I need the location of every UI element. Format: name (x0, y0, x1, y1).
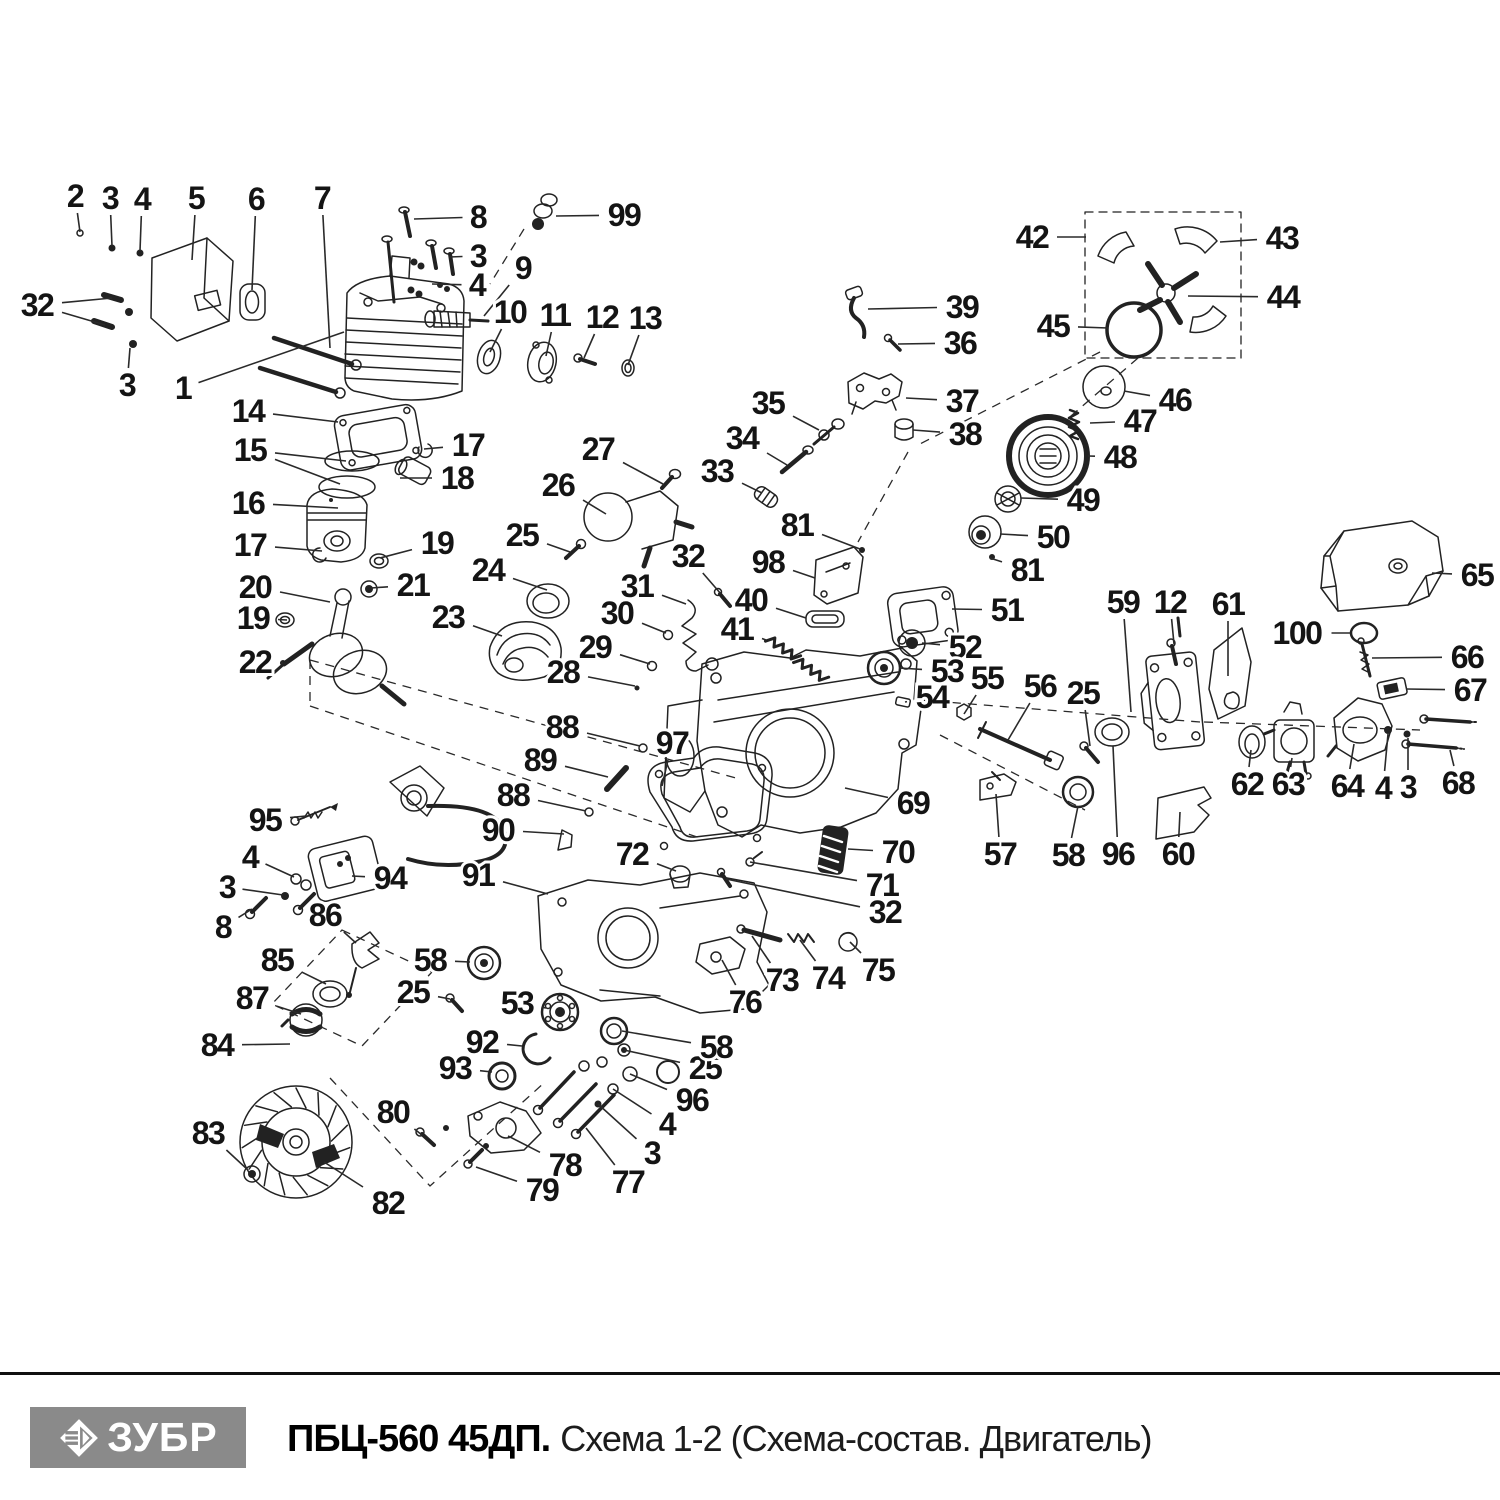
leader-line (620, 655, 650, 664)
part-number-label: 96 (676, 1082, 709, 1118)
part-number-label: 15 (234, 432, 267, 468)
part-number-label: 88 (546, 709, 579, 745)
leader-line (266, 864, 295, 877)
leader-line (226, 1150, 248, 1170)
part-number-label: 77 (612, 1164, 645, 1200)
bolt-head (554, 1119, 563, 1128)
leader-line (850, 942, 861, 953)
part-number-label: 9 (515, 250, 532, 286)
intake-flange (524, 340, 560, 385)
spark-plug-cap (390, 766, 444, 816)
nut-3b (1404, 731, 1411, 738)
leader-line (371, 587, 388, 588)
worm-gear (752, 484, 780, 509)
leader-line (449, 257, 463, 258)
oil-pump-body (848, 373, 902, 414)
leader-line (542, 1007, 546, 1008)
part-number-label: 11 (540, 297, 572, 333)
part-number-label: 16 (232, 485, 265, 521)
leader-line (547, 544, 570, 552)
screw-8b (246, 898, 267, 919)
leader-line (62, 312, 105, 325)
shaft-34 (782, 446, 813, 472)
part-number-label: 54 (916, 679, 950, 715)
part-number-label: 13 (629, 300, 662, 336)
guide-strip (806, 611, 844, 627)
leader-line (1072, 806, 1079, 838)
part-number-label: 69 (897, 785, 930, 821)
cap-75 (839, 933, 857, 951)
leader-line (1000, 534, 1028, 536)
part-number-label: 50 (1037, 519, 1070, 555)
part-number-label: 1 (175, 370, 192, 406)
leader-line (455, 961, 470, 962)
leader-line (556, 215, 599, 216)
part-number-label: 26 (542, 467, 575, 503)
part-number-label: 58 (700, 1029, 733, 1065)
oil-seal-24 (527, 584, 569, 618)
chain-guide (814, 547, 863, 604)
leader-line (1432, 573, 1452, 574)
brand-logo: ЗУБР (30, 1407, 246, 1468)
part-number-label: 84 (201, 1027, 235, 1063)
part-number-label: 79 (526, 1172, 559, 1208)
part-number-label: 23 (432, 599, 465, 635)
part-number-label: 19 (421, 525, 454, 561)
bolt-head (572, 1130, 581, 1139)
part-number-label: 97 (656, 725, 689, 761)
part-number-label: 43 (1266, 220, 1299, 256)
part-number-label: 25 (397, 974, 430, 1010)
leader-line (273, 414, 338, 422)
leader-line (1113, 746, 1117, 837)
cylinder-screws (382, 207, 454, 302)
part-number-label: 47 (1124, 403, 1157, 439)
part-number-label: 70 (882, 834, 915, 870)
part-number-label: 4 (242, 839, 260, 875)
washer-4b (1384, 726, 1392, 734)
part-number-label: 27 (582, 431, 615, 467)
part-number-label: 42 (1016, 219, 1049, 255)
part-number-label: 44 (1267, 279, 1301, 315)
part-number-label: 12 (586, 299, 619, 335)
model-name: ПБЦ-560 45ДП. (287, 1418, 550, 1460)
screw-80 (416, 1128, 434, 1145)
screw-95 (291, 803, 338, 825)
leader-line (565, 766, 608, 777)
spark-plug (425, 311, 488, 327)
spark-arrestor (532, 194, 557, 230)
part-number-label: 22 (239, 644, 272, 680)
part-number-label: 18 (441, 460, 474, 496)
leader-line (507, 1045, 522, 1047)
leader-line (952, 609, 982, 610)
leader-line (503, 882, 548, 894)
leader-line (776, 608, 806, 618)
leader-line (1179, 812, 1180, 837)
part-number-label: 31 (621, 568, 654, 604)
crankcase-gasket-97 (648, 747, 772, 850)
part-number-label: 67 (1454, 672, 1487, 708)
part-number-label: 14 (232, 393, 266, 429)
leader-line (800, 940, 816, 961)
part-number-label: 58 (1052, 837, 1085, 873)
part-number-label: 4 (134, 181, 152, 217)
gasket-61 (1209, 628, 1251, 719)
leader-line (793, 416, 819, 430)
leader-line (996, 794, 999, 837)
leader-line (584, 334, 595, 358)
part-number-label: 34 (726, 420, 760, 456)
part-number-label: 76 (729, 984, 762, 1020)
part-number-label: 12 (1154, 584, 1187, 620)
leader-line (1085, 710, 1090, 746)
leader-line (323, 215, 330, 348)
leader-line (622, 1031, 691, 1043)
nut (125, 308, 133, 316)
leader-line (703, 573, 721, 594)
leader-line (414, 218, 463, 220)
part-number-label: 65 (1461, 557, 1494, 593)
cylinder-gasket (333, 403, 423, 471)
pin-clip (418, 444, 432, 457)
leader-line (1021, 498, 1058, 499)
leader-line (438, 997, 450, 999)
schematic-page: 2345678993491011121332311415171816171920… (0, 0, 1500, 1500)
part-number-label: 36 (944, 325, 977, 361)
leader-line (140, 216, 141, 251)
part-number-label: 61 (1212, 586, 1245, 622)
leader-line (624, 1050, 680, 1062)
part-number-label: 51 (991, 592, 1024, 628)
leader-line (523, 832, 564, 835)
washer (597, 1057, 607, 1067)
part-number-label: 45 (1037, 308, 1070, 344)
leader-line (1450, 750, 1454, 766)
part-number-label: 17 (234, 527, 267, 563)
clutch-spider (1140, 264, 1196, 322)
part-number-label: 75 (862, 952, 895, 988)
screw-25 (566, 540, 586, 559)
oil-hose (845, 286, 865, 337)
screw-36 (885, 335, 901, 351)
part-number-label: 68 (1442, 765, 1475, 801)
part-number-label: 25 (1067, 675, 1100, 711)
leader-line (242, 1044, 290, 1045)
circlip-92 (523, 1034, 550, 1064)
part-number-label: 89 (524, 742, 557, 778)
washer (579, 1061, 589, 1071)
leader-line (722, 960, 736, 985)
part-number-label: 64 (1331, 768, 1365, 804)
leader-line (1078, 327, 1108, 328)
part-number-label: 72 (616, 836, 649, 872)
leader-line (275, 459, 340, 484)
leader-line (278, 620, 287, 621)
leader-line (424, 447, 443, 449)
part-number-label: 37 (946, 383, 979, 419)
bracket-76 (696, 937, 745, 974)
part-number-label: 63 (1272, 766, 1305, 802)
leader-line (588, 677, 635, 686)
leader-line (1406, 689, 1445, 690)
leader-line (243, 889, 284, 895)
leader-line (1220, 240, 1257, 242)
part-number-label: 4 (469, 267, 487, 303)
exploded-parts-diagram: 2345678993491011121332311415171816171920… (0, 0, 1500, 1387)
leader-line (432, 284, 462, 285)
part-number-label: 80 (377, 1094, 410, 1130)
leader-line (1385, 734, 1388, 771)
part-number-label: 100 (1273, 615, 1323, 651)
seal-96a (1095, 718, 1129, 746)
part-number-label: 59 (1107, 584, 1140, 620)
part-number-label: 32 (869, 894, 902, 930)
leader-line (848, 849, 873, 851)
part-number-label: 3 (219, 869, 236, 905)
leader-line (793, 571, 815, 579)
leader-line (538, 801, 586, 812)
part-number-label: 19 (237, 600, 270, 636)
part-number-label: 25 (506, 517, 539, 553)
nut (281, 892, 289, 900)
leader-line (77, 213, 80, 232)
part-number-label: 83 (192, 1115, 225, 1151)
part-number-label: 81 (1011, 552, 1044, 588)
throttle-rod-73 (737, 925, 780, 940)
part-number-label: 39 (946, 289, 979, 325)
brand-name: ЗУБР (107, 1417, 217, 1458)
part-number-label: 8 (215, 909, 232, 945)
needle-cage-49 (995, 486, 1021, 512)
leader-line (62, 298, 112, 303)
washer (301, 880, 311, 890)
screw-25c (1080, 742, 1098, 762)
part-number-label: 60 (1162, 836, 1195, 872)
leader-line (476, 1167, 517, 1181)
starter-pawl-78 (468, 1102, 541, 1153)
part-number-label: 53 (501, 985, 534, 1021)
intake-gasket (474, 338, 505, 377)
bearing-58b (1063, 777, 1093, 807)
leader-line (1188, 296, 1258, 297)
leader-line (324, 1162, 363, 1187)
screw-27 (662, 470, 681, 489)
part-number-label: 17 (452, 427, 485, 463)
page-title: ПБЦ-560 45ДП.Схема 1-2 (Схема-состав. Дв… (287, 1418, 1152, 1461)
part-number-label: 93 (439, 1050, 472, 1086)
ring-62 (1239, 726, 1265, 758)
collar-50 (969, 516, 1001, 548)
linkage-57 (980, 772, 1016, 800)
nut (129, 340, 137, 348)
air-box-cover-65 (1321, 521, 1443, 611)
nut (345, 855, 351, 861)
part-number-label: 56 (1024, 668, 1057, 704)
part-number-label: 7 (314, 180, 331, 216)
pin-81 (859, 547, 865, 553)
part-number-label: 74 (812, 960, 846, 996)
part-number-label: 94 (374, 860, 408, 896)
screw-25a (446, 994, 462, 1011)
housing-59 (1137, 652, 1205, 752)
leader-line (128, 348, 130, 368)
cylinder (345, 256, 464, 400)
leader-line (1124, 391, 1150, 396)
part-number-label: 88 (497, 777, 530, 813)
part-number-label: 87 (236, 980, 269, 1016)
leader-line (273, 504, 338, 508)
part-number-label: 81 (781, 507, 814, 543)
piston-ring (325, 451, 379, 471)
leader-line (473, 626, 502, 636)
leader-line (845, 788, 888, 798)
nut (337, 861, 343, 867)
part-number-label: 57 (984, 836, 1017, 872)
part-number-label: 99 (608, 197, 641, 233)
seal-93 (489, 1063, 515, 1089)
crankshaft (268, 589, 404, 704)
leader-line (613, 1089, 652, 1114)
bolt-35 (814, 419, 844, 444)
pin-89 (607, 768, 626, 789)
part-number-label: 62 (1231, 766, 1264, 802)
part-number-label: 32 (672, 538, 705, 574)
grommet-38 (895, 419, 913, 440)
washer-13 (622, 360, 634, 376)
part-number-label: 96 (1102, 836, 1135, 872)
nut (443, 1125, 449, 1131)
nut (483, 1143, 489, 1149)
part-number-label: 73 (766, 962, 799, 998)
leader-line (726, 879, 860, 907)
grommet-85 (313, 981, 347, 1007)
clutch-spring-ring (1107, 303, 1161, 357)
bolts-68 (1402, 715, 1478, 749)
part-number-label: 8 (470, 199, 487, 235)
leader-line (628, 335, 639, 365)
zubr-arrow-icon (58, 1417, 100, 1459)
leader-line (275, 453, 346, 461)
leader-line (1090, 422, 1115, 423)
part-number-label: 10 (494, 294, 527, 330)
part-number-label: 5 (188, 180, 205, 216)
pin-28 (635, 686, 640, 691)
part-number-label: 55 (971, 660, 1004, 696)
part-number-label: 58 (414, 942, 447, 978)
leader-line (868, 308, 937, 310)
part-number-label: 91 (462, 857, 495, 893)
part-number-label: 66 (1451, 639, 1484, 675)
leader-line (623, 463, 663, 485)
leader-line (586, 1128, 615, 1165)
dowel-88 (585, 808, 593, 816)
leader-line (913, 430, 940, 432)
part-number-label: 6 (248, 181, 265, 217)
part-number-label: 3 (102, 180, 119, 216)
leader-line (906, 398, 937, 400)
bearing-53b (542, 994, 578, 1030)
part-number-label: 2 (67, 178, 84, 214)
part-number-label: 21 (397, 567, 430, 603)
leader-line (352, 876, 365, 877)
ignition-coil (307, 835, 384, 903)
louver-plate-70 (817, 824, 849, 875)
bearing-58a (468, 947, 500, 979)
tension-rod-56 (978, 722, 1064, 771)
scheme-name: Схема 1-2 (Схема-состав. Двигатель) (560, 1418, 1151, 1459)
cap-96 (657, 1061, 679, 1083)
springs-41 (763, 635, 832, 682)
construction-lines (272, 229, 1420, 1186)
leader-line (1124, 619, 1131, 712)
plate-60 (1156, 787, 1211, 839)
leader-line (899, 668, 922, 669)
part-number-label: 98 (752, 544, 785, 580)
leader-line (192, 215, 195, 260)
leader-line (1008, 703, 1030, 740)
part-number-label: 35 (752, 385, 785, 421)
leader-line (111, 215, 112, 246)
leader-line (762, 639, 766, 641)
case-bolts-77 (540, 1072, 614, 1132)
leader-line (199, 332, 345, 383)
screw-32b (715, 589, 731, 607)
part-number-label: 95 (249, 802, 282, 838)
leader-line (380, 550, 412, 558)
spacer-64 (1328, 698, 1392, 761)
part-number-label: 82 (372, 1185, 405, 1221)
bearing-53 (868, 652, 900, 684)
leader-line (642, 623, 666, 633)
part-number-label: 90 (482, 812, 515, 848)
leader-line (898, 343, 935, 344)
bolt-head (534, 1106, 543, 1115)
part-number-label: 4 (659, 1106, 677, 1142)
part-number-label: 49 (1067, 482, 1100, 518)
part-number-label: 32 (21, 287, 54, 323)
cap-87 (282, 1004, 322, 1036)
trigger-86 (346, 932, 379, 998)
washer-46 (1083, 366, 1125, 408)
part-number-label: 38 (949, 416, 982, 452)
leader-line (302, 972, 326, 984)
key-54 (895, 697, 910, 708)
leader-line (1372, 657, 1442, 658)
leader-line (598, 1104, 637, 1139)
part-number-label: 3 (119, 367, 136, 403)
leader-line (767, 453, 787, 465)
part-number-label: 48 (1104, 439, 1137, 475)
part-number-label: 29 (579, 629, 612, 665)
leader-line (252, 216, 255, 290)
leader-line (662, 595, 686, 604)
leader-line (280, 592, 330, 602)
part-number-label: 24 (472, 552, 506, 588)
part-number-label: 85 (261, 942, 294, 978)
part-number-label: 4 (1375, 770, 1393, 806)
part-number-label: 41 (721, 611, 754, 647)
washer-21 (361, 581, 377, 597)
part-number-label: 28 (547, 654, 580, 690)
part-number-label: 3 (1400, 769, 1417, 805)
footer-divider (0, 1372, 1500, 1375)
part-number-label: 46 (1159, 382, 1192, 418)
leader-line (822, 535, 860, 550)
part-number-label: 33 (701, 453, 734, 489)
bracket-67 (1377, 677, 1408, 699)
part-number-label: 86 (309, 897, 342, 933)
